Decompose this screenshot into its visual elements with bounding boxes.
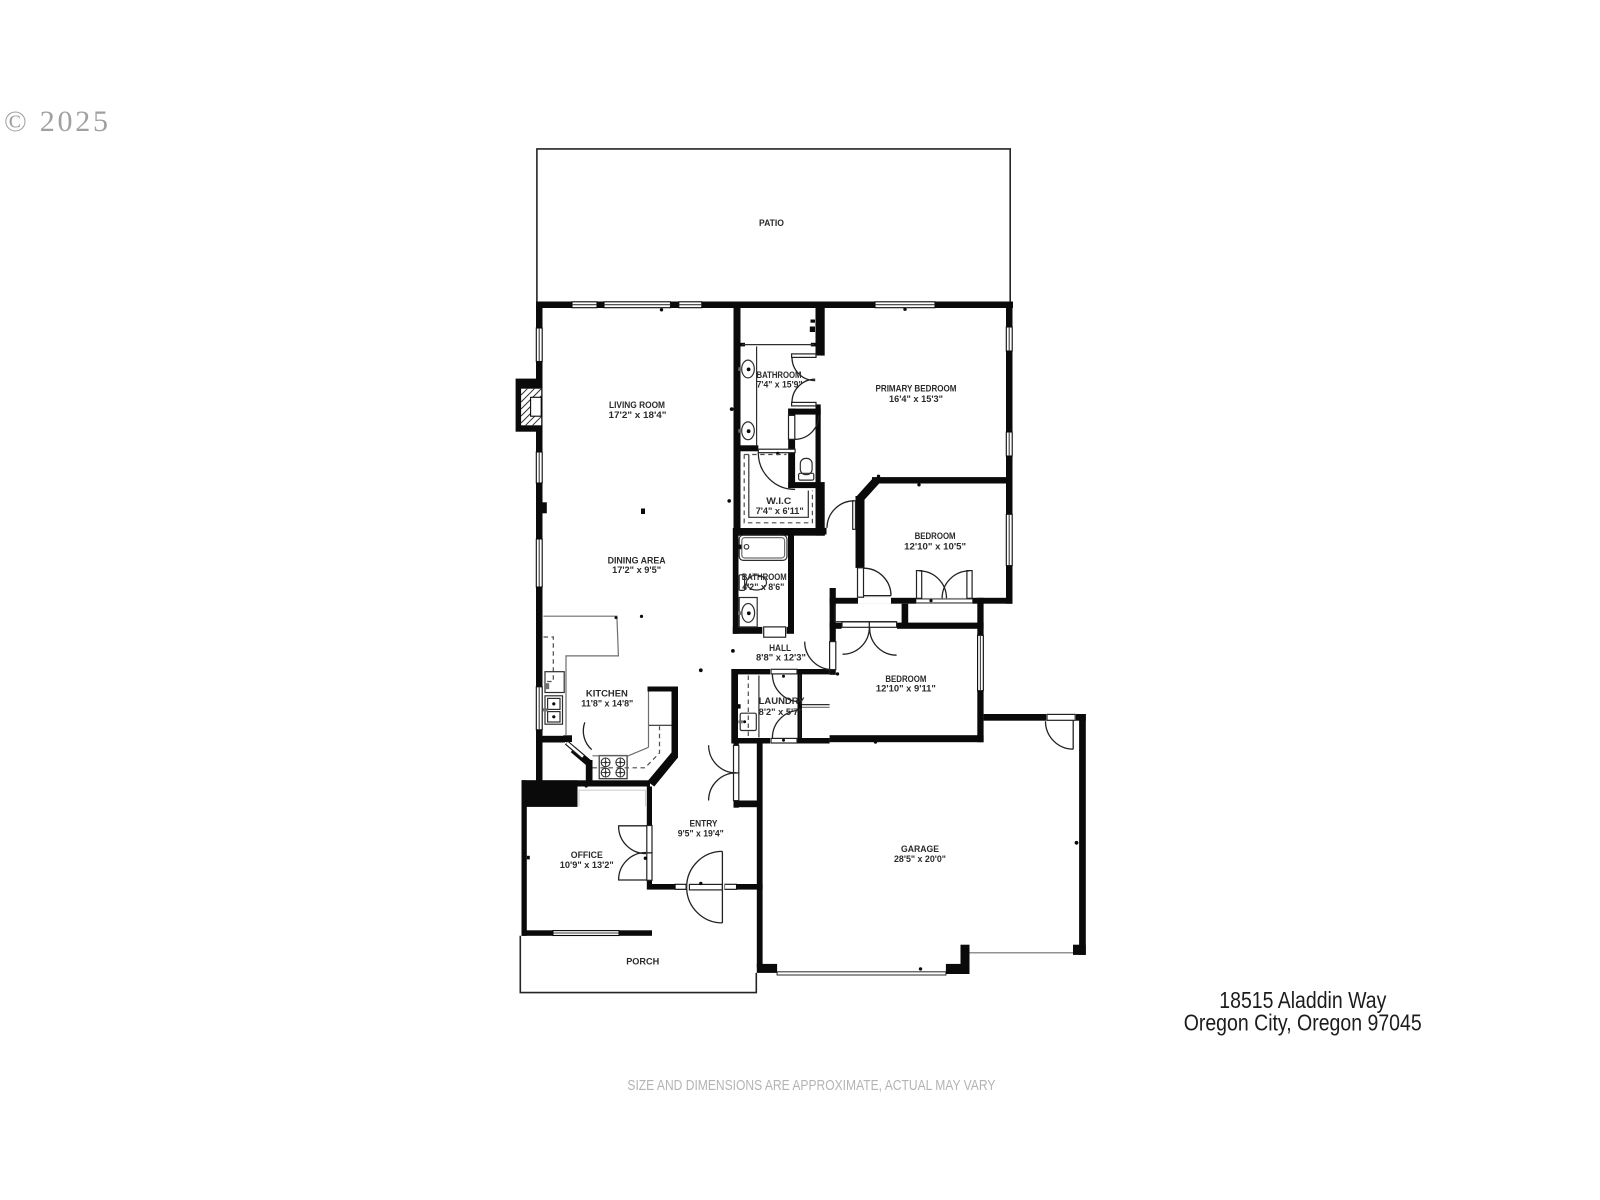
svg-text:KITCHEN: KITCHEN <box>586 689 628 699</box>
svg-text:10'9" x 13'2": 10'9" x 13'2" <box>560 860 614 870</box>
svg-text:ENTRY: ENTRY <box>690 818 718 828</box>
svg-text:PORCH: PORCH <box>626 956 659 966</box>
svg-text:Oregon City, Oregon 97045: Oregon City, Oregon 97045 <box>1184 1010 1422 1036</box>
svg-text:4'2" x 8'6": 4'2" x 8'6" <box>742 582 784 592</box>
svg-text:12'10" x 9'11": 12'10" x 9'11" <box>876 683 936 693</box>
svg-text:7'4" x 6'11": 7'4" x 6'11" <box>756 506 804 516</box>
svg-text:W.I.C: W.I.C <box>766 496 791 506</box>
svg-text:SIZE AND DIMENSIONS ARE APPROX: SIZE AND DIMENSIONS ARE APPROXIMATE, ACT… <box>627 1078 995 1094</box>
svg-text:OFFICE: OFFICE <box>571 850 603 860</box>
svg-text:16'4" x 15'3": 16'4" x 15'3" <box>889 394 943 404</box>
svg-text:LAUNDRY: LAUNDRY <box>759 696 805 706</box>
svg-text:17'2" x 9'5": 17'2" x 9'5" <box>612 565 661 575</box>
svg-text:8'2" x 5'7": 8'2" x 5'7" <box>759 707 803 717</box>
svg-text:BATHROOM: BATHROOM <box>742 572 787 582</box>
svg-text:GARAGE: GARAGE <box>901 844 939 854</box>
svg-text:7'4" x 15'9": 7'4" x 15'9" <box>757 379 803 389</box>
svg-text:11'8" x 14'8": 11'8" x 14'8" <box>581 698 633 708</box>
svg-text:8'8" x 12'3": 8'8" x 12'3" <box>756 652 806 662</box>
svg-text:HALL: HALL <box>769 643 791 653</box>
svg-text:DINING AREA: DINING AREA <box>608 555 666 565</box>
svg-text:9'5" x 19'4": 9'5" x 19'4" <box>678 828 724 838</box>
svg-text:PRIMARY BEDROOM: PRIMARY BEDROOM <box>876 384 957 394</box>
svg-text:17'2" x 18'4": 17'2" x 18'4" <box>609 410 667 420</box>
svg-text:28'5" x 20'0": 28'5" x 20'0" <box>894 854 946 864</box>
svg-text:PATIO: PATIO <box>759 218 784 228</box>
svg-text:BEDROOM: BEDROOM <box>915 531 956 541</box>
svg-text:LIVING ROOM: LIVING ROOM <box>609 400 665 410</box>
svg-text:12'10" x 10'5": 12'10" x 10'5" <box>904 541 966 551</box>
svg-text:BEDROOM: BEDROOM <box>885 674 926 684</box>
